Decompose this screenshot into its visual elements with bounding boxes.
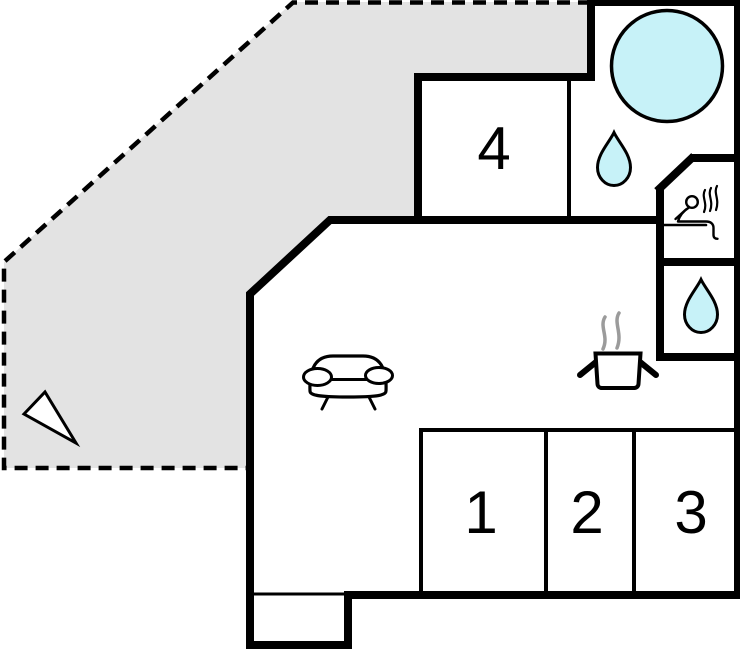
hot-tub-icon (612, 11, 723, 122)
pot-steam (603, 317, 605, 349)
room-3-label: 3 (674, 479, 707, 546)
room-1-label: 1 (464, 479, 497, 546)
floor-plan-drawing: 4 1 2 3 (0, 0, 740, 652)
floor-plan: 4 1 2 3 (0, 0, 740, 652)
room-2-label: 2 (570, 479, 603, 546)
pot-steam (617, 313, 619, 348)
room-4-label: 4 (477, 115, 510, 182)
